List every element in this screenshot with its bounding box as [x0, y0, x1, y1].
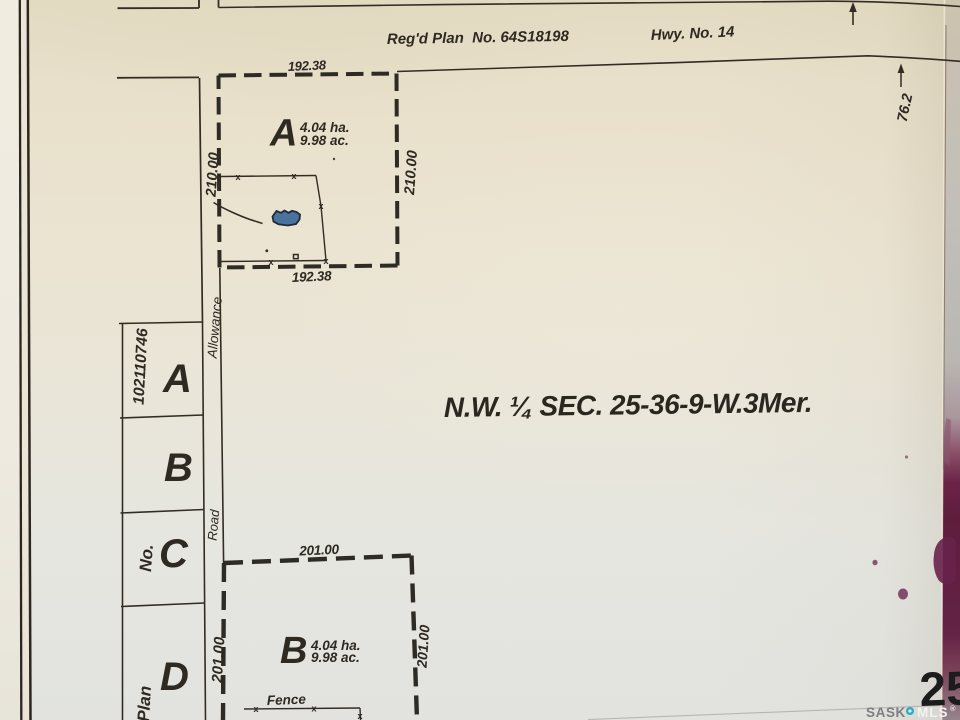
- svg-text:C: C: [159, 532, 189, 576]
- svg-text:B: B: [280, 630, 307, 672]
- svg-text:x: x: [311, 704, 316, 714]
- svg-text:Reg'd Plan No. 64S18198: Reg'd Plan No. 64S18198: [387, 28, 570, 48]
- svg-text:B: B: [164, 446, 193, 490]
- svg-text:Plan: Plan: [134, 685, 155, 720]
- svg-text:x: x: [235, 172, 240, 182]
- svg-text:SASK: SASK: [866, 705, 906, 720]
- svg-text:201.00: 201.00: [209, 636, 228, 684]
- svg-text:x: x: [268, 257, 273, 267]
- svg-text:A: A: [269, 113, 297, 155]
- svg-text:®: ®: [950, 704, 956, 713]
- svg-text:D: D: [160, 655, 189, 699]
- svg-text:Fence: Fence: [267, 692, 307, 708]
- svg-text:N.W. ¼ SEC. 25-36-9-W.3Mer.: N.W. ¼ SEC. 25-36-9-W.3Mer.: [444, 387, 813, 423]
- svg-text:No.: No.: [136, 544, 157, 573]
- svg-text:Road: Road: [205, 508, 223, 541]
- svg-text:A: A: [162, 357, 192, 401]
- svg-text:x: x: [253, 704, 258, 714]
- svg-text:201.00: 201.00: [298, 542, 340, 559]
- svg-text:x: x: [357, 711, 362, 720]
- svg-text:9.98 ac.: 9.98 ac.: [300, 133, 349, 148]
- svg-text:9.98 ac.: 9.98 ac.: [311, 650, 360, 665]
- svg-text:MLS: MLS: [917, 705, 949, 720]
- svg-text:192.38: 192.38: [287, 57, 327, 74]
- svg-text:x: x: [318, 201, 323, 211]
- svg-text:x: x: [323, 256, 328, 266]
- svg-text:201.00: 201.00: [413, 624, 432, 669]
- svg-text:x: x: [291, 171, 296, 181]
- svg-text:210.00: 210.00: [203, 152, 222, 198]
- svg-text:210.00: 210.00: [402, 150, 421, 196]
- svg-text:192.38: 192.38: [291, 268, 332, 285]
